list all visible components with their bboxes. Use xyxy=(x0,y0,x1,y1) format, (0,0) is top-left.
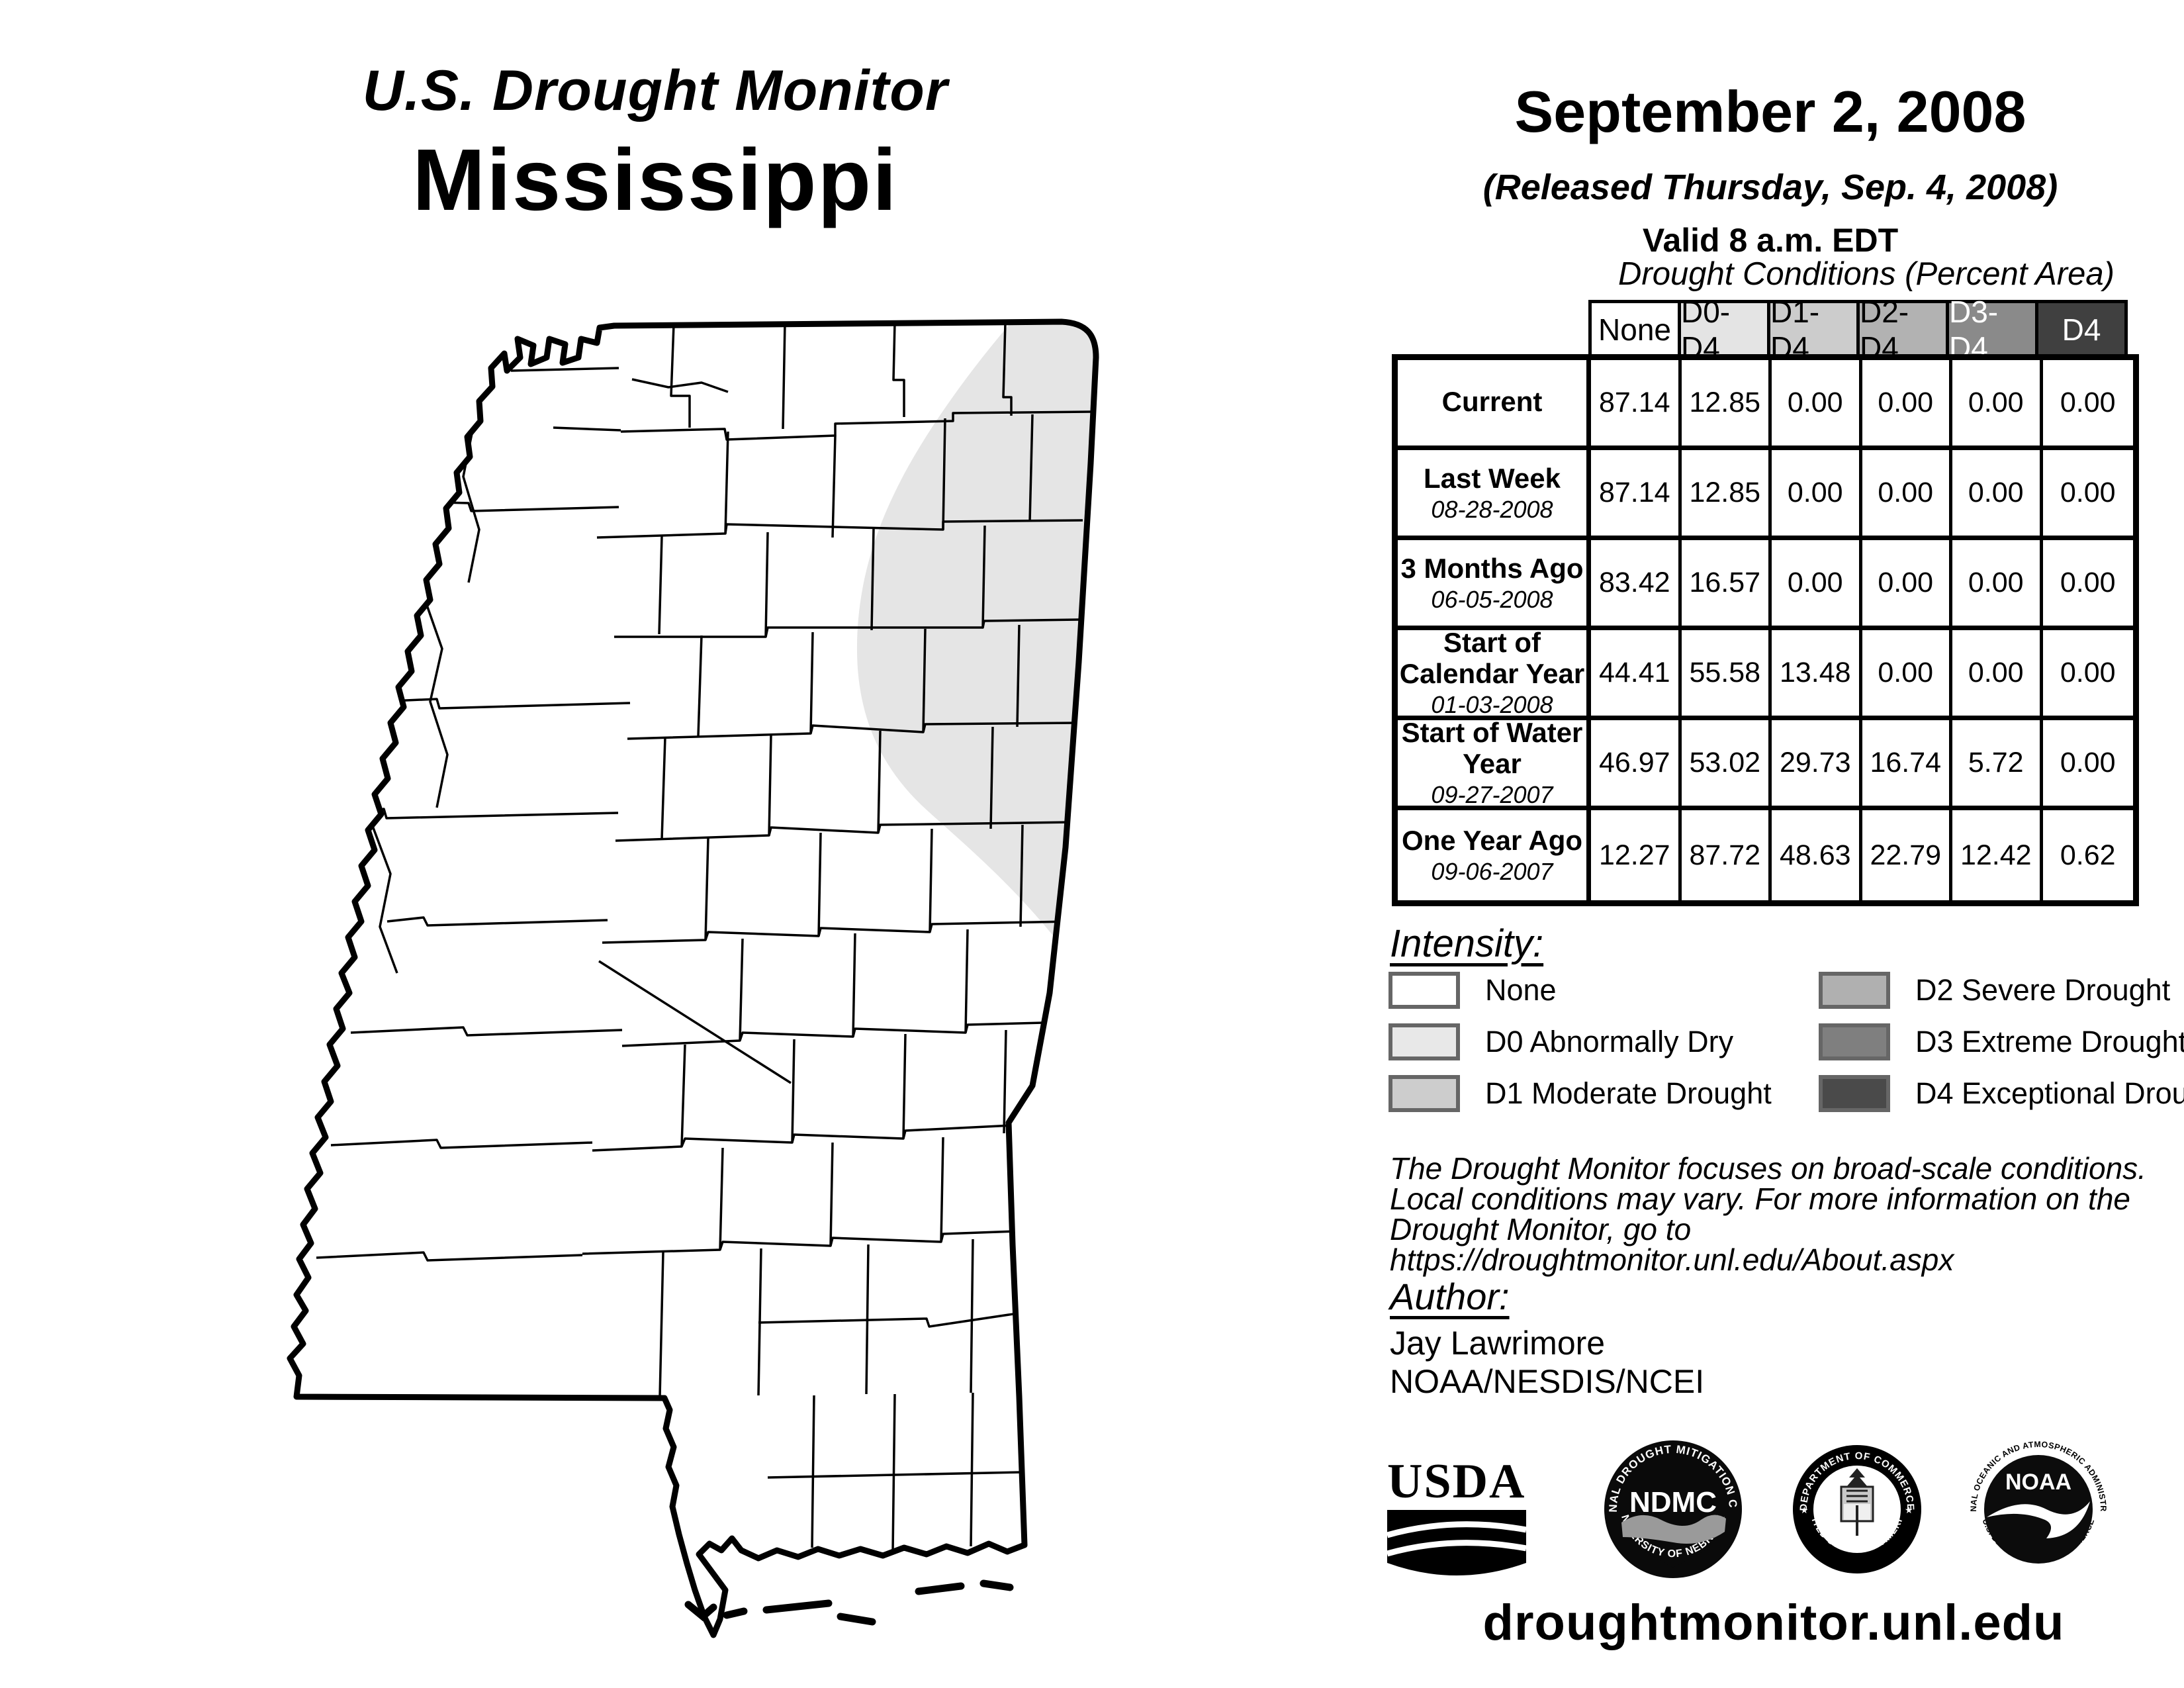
legend-item-d1: D1 Moderate Drought xyxy=(1388,1075,1772,1112)
drought-monitor-report: { "title": { "line1": "U.S. Drought Moni… xyxy=(0,0,2184,1688)
table-value: 0.00 xyxy=(1772,450,1862,540)
author-name: Jay Lawrimore xyxy=(1390,1324,1605,1362)
table-value: 0.00 xyxy=(1772,540,1862,630)
table-caption: Drought Conditions (Percent Area) xyxy=(1588,256,2144,293)
table-value: 87.14 xyxy=(1591,360,1682,450)
table-value: 53.02 xyxy=(1682,720,1772,810)
state-name: Mississippi xyxy=(218,130,1092,230)
col-header-d4: D4 xyxy=(2035,300,2128,355)
table-value: 83.42 xyxy=(1591,540,1682,630)
table-value: 0.00 xyxy=(2043,360,2134,450)
noaa-wordmark: NOAA xyxy=(2005,1470,2071,1495)
droughtmonitor-url[interactable]: droughtmonitor.unl.edu xyxy=(1390,1594,2158,1652)
svg-text:★: ★ xyxy=(1800,1505,1809,1515)
drought-conditions-table: Current 87.14 12.85 0.00 0.00 0.00 0.00 … xyxy=(1392,354,2139,906)
legend-swatch-none xyxy=(1388,972,1460,1009)
legend-swatch-d3 xyxy=(1819,1023,1890,1060)
valid-time: Valid 8 a.m. EDT xyxy=(1383,221,2158,259)
table-value: 0.00 xyxy=(1952,360,2043,450)
report-title: U.S. Drought Monitor xyxy=(218,58,1092,124)
table-value: 46.97 xyxy=(1591,720,1682,810)
table-value: 0.00 xyxy=(2043,720,2134,810)
d0-drought-region xyxy=(857,322,1096,948)
table-value: 48.63 xyxy=(1772,810,1862,900)
table-value: 0.00 xyxy=(1862,450,1953,540)
release-date: (Released Thursday, Sep. 4, 2008) xyxy=(1383,167,2158,208)
row-label: Last Week 08-28-2008 xyxy=(1398,450,1591,540)
table-value: 0.00 xyxy=(1952,450,2043,540)
table-value: 12.27 xyxy=(1591,810,1682,900)
usda-swoosh-icon xyxy=(1387,1510,1526,1583)
table-value: 0.00 xyxy=(2043,630,2134,720)
table-value: 0.00 xyxy=(1772,360,1862,450)
ndmc-logo: NATIONAL DROUGHT MITIGATION CENTER UNIVE… xyxy=(1602,1438,1745,1581)
legend-swatch-d4 xyxy=(1819,1075,1890,1112)
author-organization: NOAA/NESDIS/NCEI xyxy=(1390,1362,1704,1401)
row-label: Start of Calendar Year 01-03-2008 xyxy=(1398,630,1591,720)
col-header-none: None xyxy=(1588,300,1681,355)
table-header-row: None D0-D4 D1-D4 D2-D4 D3-D4 D4 xyxy=(1588,300,2124,355)
mississippi-map xyxy=(265,291,1191,1662)
legend-swatch-d1 xyxy=(1388,1075,1460,1112)
table-value: 55.58 xyxy=(1682,630,1772,720)
legend-swatch-d0 xyxy=(1388,1023,1460,1060)
col-header-d3d4: D3-D4 xyxy=(1946,300,2038,355)
table-value: 12.42 xyxy=(1952,810,2043,900)
table-value: 29.73 xyxy=(1772,720,1862,810)
legend-item-d0: D0 Abnormally Dry xyxy=(1388,1023,1733,1060)
col-header-d2d4: D2-D4 xyxy=(1856,300,1949,355)
table-value: 0.00 xyxy=(1862,540,1953,630)
legend-swatch-d2 xyxy=(1819,972,1890,1009)
usda-logo: USDA xyxy=(1387,1454,1526,1586)
table-value: 0.00 xyxy=(1952,540,2043,630)
noaa-logo: NATIONAL OCEANIC AND ATMOSPHERIC ADMINIS… xyxy=(1967,1438,2110,1581)
legend-item-d4: D4 Exceptional Drought xyxy=(1819,1075,2184,1112)
table-value: 0.00 xyxy=(2043,450,2134,540)
legend-title: Intensity: xyxy=(1390,921,1543,966)
table-value: 22.79 xyxy=(1862,810,1953,900)
legend-item-d2: D2 Severe Drought xyxy=(1819,972,2170,1009)
table-value: 0.62 xyxy=(2043,810,2134,900)
table-value: 12.85 xyxy=(1682,450,1772,540)
table-value: 87.14 xyxy=(1591,450,1682,540)
svg-text:★: ★ xyxy=(1905,1505,1913,1515)
author-heading: Author: xyxy=(1390,1275,1510,1318)
col-header-d1d4: D1-D4 xyxy=(1767,300,1860,355)
usda-wordmark: USDA xyxy=(1387,1454,1526,1510)
row-label: 3 Months Ago 06-05-2008 xyxy=(1398,540,1591,630)
table-value: 16.74 xyxy=(1862,720,1953,810)
table-value: 16.57 xyxy=(1682,540,1772,630)
table-value: 0.00 xyxy=(1952,630,2043,720)
barrier-islands xyxy=(688,1583,1010,1622)
row-label: Current xyxy=(1398,360,1591,450)
legend-item-d3: D3 Extreme Drought xyxy=(1819,1023,2184,1060)
row-label: Start of Water Year 09-27-2007 xyxy=(1398,720,1591,810)
table-value: 87.72 xyxy=(1682,810,1772,900)
table-value: 12.85 xyxy=(1682,360,1772,450)
legend-item-none: None xyxy=(1388,972,1557,1009)
row-label: One Year Ago 09-06-2007 xyxy=(1398,810,1591,900)
table-value: 0.00 xyxy=(1862,360,1953,450)
report-date: September 2, 2008 xyxy=(1383,78,2158,146)
col-header-d0d4: D0-D4 xyxy=(1678,300,1770,355)
ndmc-wordmark: NDMC xyxy=(1629,1486,1717,1519)
table-value: 0.00 xyxy=(1862,630,1953,720)
table-value: 5.72 xyxy=(1952,720,2043,810)
disclaimer-text: The Drought Monitor focuses on broad-sca… xyxy=(1390,1153,2184,1275)
table-value: 0.00 xyxy=(2043,540,2134,630)
table-value: 13.48 xyxy=(1772,630,1862,720)
commerce-seal-logo: DEPARTMENT OF COMMERCE UNITED STATES OF … xyxy=(1791,1443,1923,1575)
table-value: 44.41 xyxy=(1591,630,1682,720)
